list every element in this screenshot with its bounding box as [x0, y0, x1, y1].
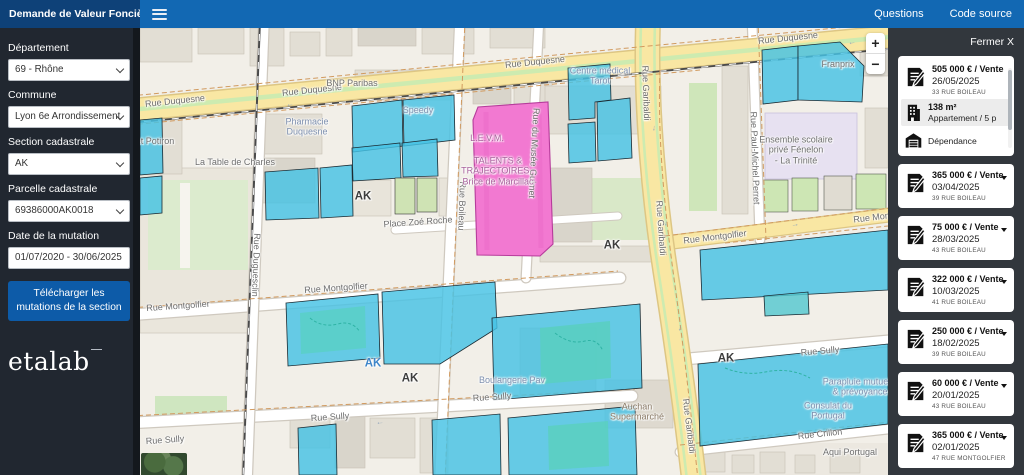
map-label: Rue Montgolfier [146, 299, 210, 314]
map-label: Rue Garibaldi [640, 65, 652, 120]
mutation-price: 250 000 € / Vente [932, 326, 1004, 336]
map-label: Rue Duguesclin [250, 233, 263, 297]
zoom-out-button[interactable]: − [866, 54, 885, 74]
mutation-date: 20/01/2025 [932, 390, 999, 401]
map-label: Rue Duquesne [758, 30, 819, 47]
mutation-icon [905, 66, 927, 88]
mutation-icon [905, 172, 927, 194]
map-label: ↓ [664, 218, 669, 228]
caret-down-icon[interactable] [1001, 176, 1007, 180]
mutation-card[interactable]: 322 000 € / Vente 10/03/2025 41 RUE BOIL… [898, 268, 1014, 312]
section-select[interactable]: AK [8, 153, 130, 175]
mutation-address: 41 RUE BOILEAU [932, 299, 1004, 306]
lot-detail-row: 138 m² Appartement / 5 p [901, 99, 1009, 126]
caret-down-icon[interactable] [1001, 280, 1007, 284]
mutation-date: 03/04/2025 [932, 182, 1004, 193]
results-list: 505 000 € / Vente 26/05/2025 33 RUE BOIL… [898, 56, 1014, 468]
chevron-down-icon [116, 206, 124, 214]
map-label: Boulangerie Pav [479, 375, 545, 385]
map-label: Rue Boileau [456, 181, 468, 230]
map-label: ← [376, 417, 385, 427]
map-label: Aqui Portugal [823, 447, 877, 457]
map-label: ↓ [652, 123, 657, 132]
app-title: Demande de Valeur Foncière [0, 0, 140, 28]
top-navbar: Questions Code source [140, 0, 1024, 28]
map-label: Franprix [821, 59, 854, 69]
map-label: Speedy [403, 105, 434, 115]
mutation-card[interactable]: 365 000 € / Vente 03/04/2025 39 RUE BOIL… [898, 164, 1014, 208]
filters-sidebar: Département 69 - Rhône Commune Lyon 6e A… [0, 28, 140, 475]
mutation-icon [905, 380, 927, 402]
map-label: Rue Montgolfier [683, 228, 747, 246]
date-range-input[interactable]: 01/07/2020 - 30/06/2025 [8, 247, 130, 269]
map-label: Rue Duquesne [505, 54, 566, 71]
map-labels: Rue DuquesneRue DuquesneRue DuquesneRue … [140, 28, 888, 475]
map-label: → [826, 349, 835, 359]
garage-icon [905, 132, 922, 149]
results-panel: Fermer X 505 000 € / Vente 26/05/2025 33… [888, 28, 1024, 475]
etalab-logo: etalab [8, 347, 90, 376]
lot-type: Appartement / 5 p [928, 113, 996, 123]
mutation-address: 47 RUE MONTGOLFIER [932, 455, 1006, 462]
map-label: Rue Sully [310, 410, 349, 423]
mutation-icon [905, 276, 927, 298]
mutation-price: 505 000 € / Vente [932, 64, 1004, 74]
map-label: Rue Sully [145, 433, 184, 446]
sidebar-scrollbar[interactable] [133, 28, 140, 475]
close-panel-button[interactable]: Fermer X [898, 36, 1014, 48]
mutation-date: 28/03/2025 [932, 234, 999, 245]
hamburger-icon[interactable] [152, 9, 167, 20]
map-label: Consulat du Portugal [804, 401, 852, 422]
zoom-in-button[interactable]: + [866, 33, 885, 54]
mutation-date: 02/01/2025 [932, 442, 1006, 453]
mutation-card[interactable]: 505 000 € / Vente 26/05/2025 33 RUE BOIL… [898, 56, 1014, 156]
mutation-price: 365 000 € / Vente [932, 430, 1006, 440]
mutation-address: 39 RUE BOILEAU [932, 351, 1004, 358]
map-label: BNP Paribas [326, 78, 377, 88]
map-label: ise et Potiron [140, 136, 174, 146]
commune-select[interactable]: Lyon 6e Arrondissement [8, 106, 130, 128]
map-label: Auchan Supermarché [610, 402, 664, 423]
map-label: Ensemble scolaire privé Fénelon - La Tri… [759, 134, 833, 165]
mutation-card[interactable]: 60 000 € / Vente 20/01/2025 43 RUE BOILE… [898, 372, 1014, 416]
nav-questions[interactable]: Questions [874, 8, 924, 20]
caret-down-icon[interactable] [1001, 332, 1007, 336]
map-label: Rue Montgolfier [304, 281, 368, 296]
mutation-address: 43 RUE BOILEAU [932, 247, 999, 254]
lot-type: Dépendance [928, 136, 977, 146]
map-label: La Table de Charles [195, 157, 275, 167]
map-label: → [790, 219, 799, 229]
map-label: Pharmacie Duquesne [285, 117, 328, 138]
lot-detail-row: Dépendance [901, 129, 1009, 152]
parcelle-select[interactable]: 69386000AK0018 [8, 200, 130, 222]
departement-label: Département [8, 42, 130, 54]
mutation-date: 26/05/2025 [932, 76, 1004, 87]
mutation-icon [905, 432, 927, 454]
mutation-date: 10/03/2025 [932, 286, 1004, 297]
mutation-price: 60 000 € / Vente [932, 378, 999, 388]
mutation-address: 43 RUE BOILEAU [932, 403, 999, 410]
map-label: Rue Duquesne [145, 93, 206, 110]
map-label: AK [604, 239, 621, 252]
map-label: L.E.V.M. [470, 133, 504, 143]
mutation-card[interactable]: 365 000 € / Vente 02/01/2025 47 RUE MONT… [898, 424, 1014, 468]
mutation-icon [905, 224, 927, 246]
caret-down-icon[interactable] [1001, 436, 1007, 440]
map-label: AK [355, 190, 372, 203]
mutation-date: 18/02/2025 [932, 338, 1004, 349]
caret-down-icon[interactable] [1001, 228, 1007, 232]
nav-code-source[interactable]: Code source [950, 8, 1012, 20]
card-scrollbar[interactable] [1008, 68, 1012, 148]
map-label: Rue Paul-Michel Perret [748, 111, 762, 204]
mutation-price: 75 000 € / Vente [932, 222, 999, 232]
map-label: Rue Crillon [797, 427, 842, 442]
map-label: Rue Montgolfier [853, 207, 888, 225]
mutation-icon [905, 328, 927, 350]
satellite-layer-switcher[interactable] [141, 453, 187, 475]
map-label: Rue Sully [800, 344, 839, 358]
download-mutations-button[interactable]: Télécharger les mutations de la section [8, 281, 130, 321]
map-label: ↓ [677, 323, 682, 333]
map-label: Rue Duquesne [282, 82, 343, 99]
mutation-address: 39 RUE BOILEAU [932, 195, 1004, 202]
map-viewport[interactable]: Rue DuquesneRue DuquesneRue DuquesneRue … [140, 28, 888, 475]
chevron-down-icon [116, 159, 124, 167]
date-label: Date de la mutation [8, 230, 130, 242]
mutation-card[interactable]: 75 000 € / Vente 28/03/2025 43 RUE BOILE… [898, 216, 1014, 260]
map-label: Rue Garibaldi [681, 398, 698, 454]
map-label: → [436, 280, 445, 290]
map-label: TALENTS & TRAJECTOIRES - Brice de Marcil… [461, 155, 535, 186]
map-label: Rue Sully [472, 390, 511, 403]
chevron-down-icon [116, 65, 124, 73]
building-icon [905, 104, 922, 121]
parcelle-label: Parcelle cadastrale [8, 183, 130, 195]
map-label: AK [402, 372, 419, 385]
map-label: AK [718, 352, 735, 365]
mutation-price: 365 000 € / Vente [932, 170, 1004, 180]
map-label: Place Zoé Roche [383, 214, 453, 229]
lot-surface: 138 m² [928, 102, 996, 112]
mutation-card[interactable]: 250 000 € / Vente 18/02/2025 39 RUE BOIL… [898, 320, 1014, 364]
mutation-address: 33 RUE BOILEAU [932, 89, 1004, 96]
map-label: ← [848, 37, 857, 47]
map-label: Rue Garibaldi [654, 200, 668, 256]
section-label: Section cadastrale [8, 136, 130, 148]
map-label: ← [286, 99, 295, 109]
map-label: AK [365, 357, 382, 370]
departement-select[interactable]: 69 - Rhône [8, 59, 130, 81]
map-label: Centre médical Tarot [570, 66, 631, 87]
caret-down-icon[interactable] [1001, 384, 1007, 388]
map-zoom-control: + − [866, 33, 885, 74]
map-label: Parapluie mutuelle & prévoyance [823, 377, 888, 398]
mutation-price: 322 000 € / Vente [932, 274, 1004, 284]
map-label: Rue du Musée Guimet [526, 108, 541, 198]
commune-label: Commune [8, 89, 130, 101]
